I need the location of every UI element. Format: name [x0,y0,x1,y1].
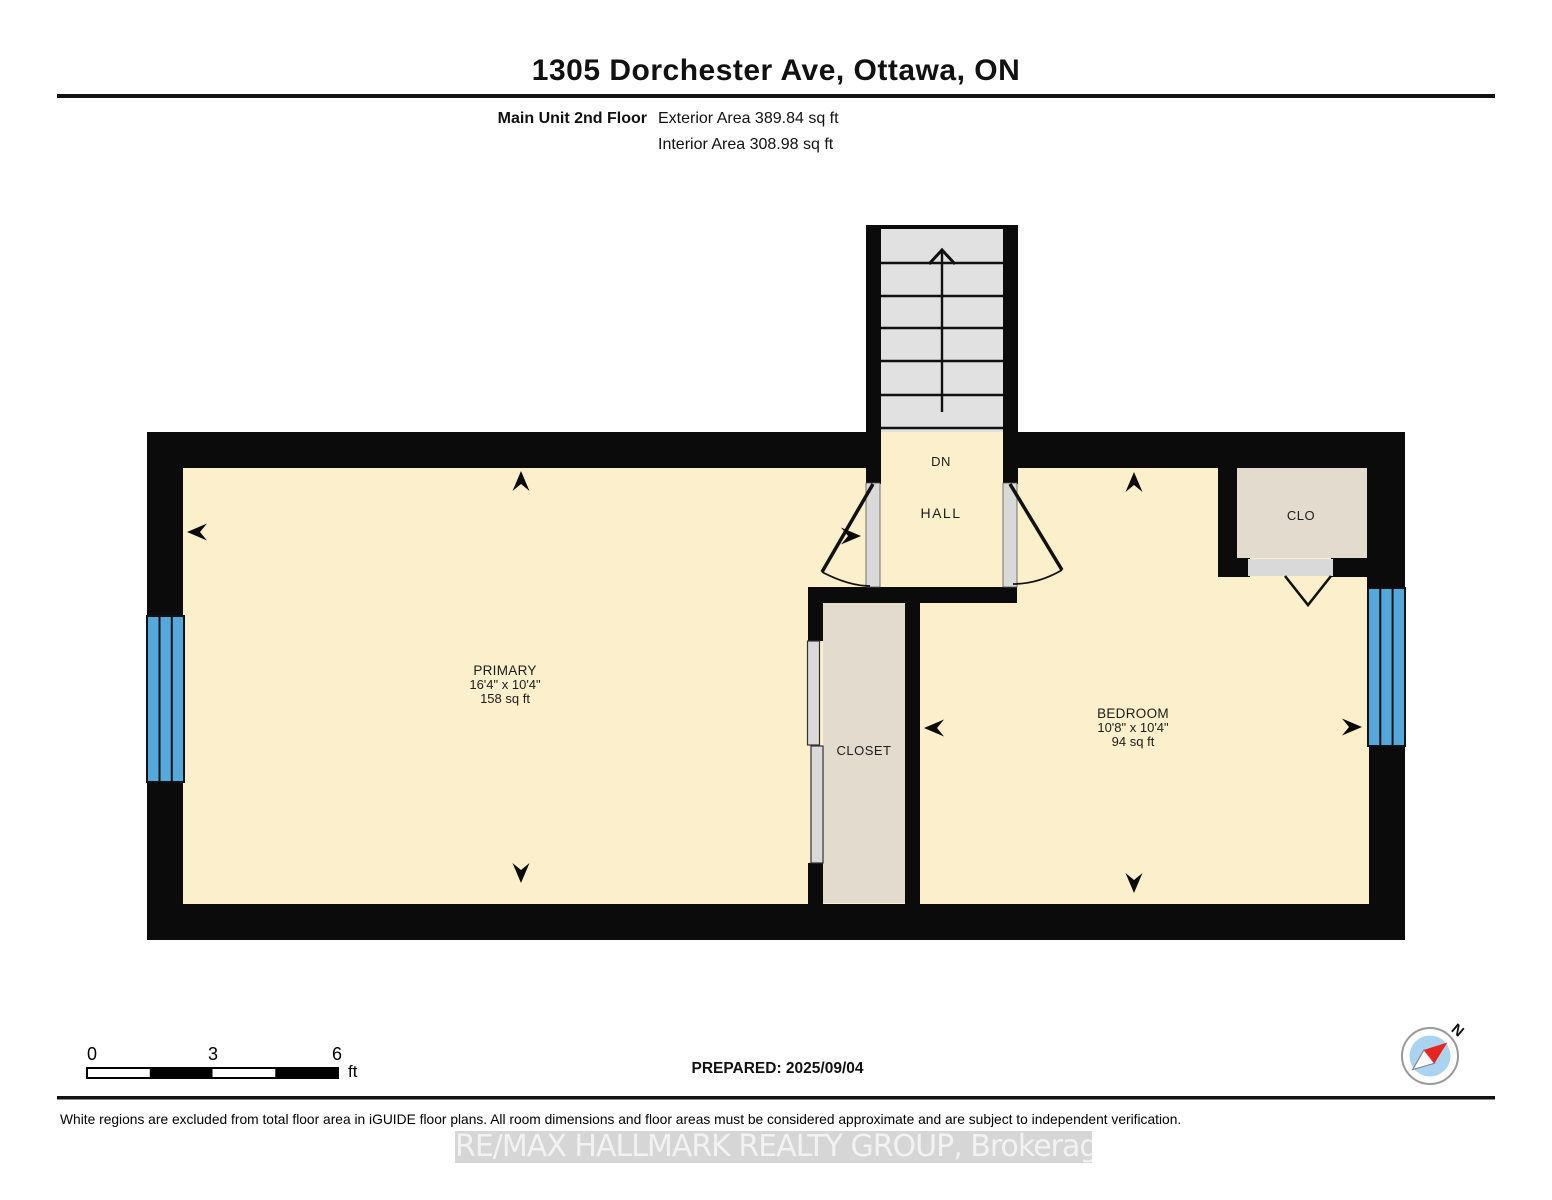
sliding-door-panel [811,746,823,863]
door-jamb [1003,483,1017,587]
stair-down-label: DN [911,454,971,469]
scale-unit-label: ft [348,1062,357,1082]
bedroom-room-name: BEDROOM [1033,707,1233,721]
clo-opening-sill [1248,559,1333,576]
plan-walls-and-floors [147,225,1405,940]
window-right [1368,588,1405,746]
primary-room-name: PRIMARY [405,664,605,678]
bedroom-room-label: BEDROOM 10'8" x 10'4" 94 sq ft [1033,707,1233,749]
staircase [881,229,1003,432]
floor-plan-page: 1305 Dorchester Ave, Ottawa, ON Main Uni… [0,0,1552,1200]
bedroom-room-area: 94 sq ft [1033,735,1233,749]
scale-start-label: 0 [80,1044,104,1065]
compass-icon [1402,1028,1458,1084]
scale-mid-label: 3 [201,1044,225,1065]
door-jamb [866,483,880,587]
scale-bar [87,1068,338,1078]
footer-rule [57,1096,1495,1100]
primary-room-area: 158 sq ft [405,692,605,706]
brokerage-watermark: RE/MAX HALLMARK REALTY GROUP, Brokerage [455,1131,1092,1163]
hall-label: HALL [896,505,986,521]
sliding-door-panel [808,641,820,745]
interior-floor [183,468,1369,904]
floor-plan-graphic [0,0,1552,1200]
interior-area: Interior Area 308.98 sq ft [658,136,833,154]
clo-label: CLO [1261,508,1341,523]
disclaimer-text: White regions are excluded from total fl… [60,1112,1181,1127]
scale-end-label: 6 [325,1044,349,1065]
floor-label: Main Unit 2nd Floor [498,110,647,128]
closet-label: CLOSET [814,743,914,758]
header-rule [57,94,1495,98]
primary-room-label: PRIMARY 16'4" x 10'4" 158 sq ft [405,664,605,706]
prepared-date: PREPARED: 2025/09/04 [650,1060,905,1078]
window-left [147,616,184,782]
exterior-area: Exterior Area 389.84 sq ft [658,110,839,128]
bedroom-room-dimensions: 10'8" x 10'4" [1033,721,1233,735]
page-title: 1305 Dorchester Ave, Ottawa, ON [0,54,1552,88]
primary-room-dimensions: 16'4" x 10'4" [405,678,605,692]
